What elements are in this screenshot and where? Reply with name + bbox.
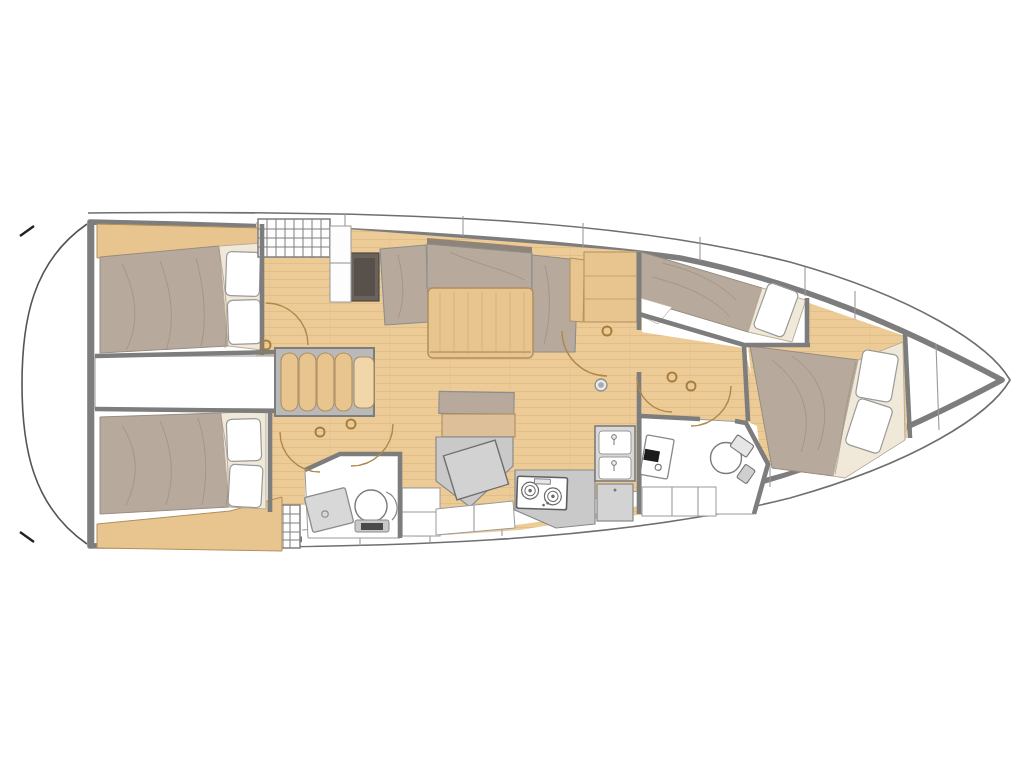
settee-back-cushion [427, 244, 532, 292]
step-tread [317, 353, 334, 411]
companionway-hatch-grid-top [258, 219, 330, 257]
transom-corner-mark-top [20, 226, 34, 236]
nav-seat [442, 414, 515, 437]
tall-locker [330, 226, 351, 302]
aft-cabin-starboard [97, 411, 282, 551]
pillow [228, 464, 263, 508]
step-landing [354, 357, 374, 408]
nav-station [436, 391, 515, 535]
forward-head-sink [640, 435, 675, 479]
settee-left-cushion [380, 245, 429, 325]
pillow [225, 251, 261, 296]
transom-corner-mark-bottom [20, 532, 34, 542]
stove-handle [534, 479, 550, 485]
pillow [226, 418, 261, 461]
aft-cabin-port [97, 224, 262, 353]
pillow [227, 299, 262, 344]
bed-duvet [100, 413, 229, 514]
faucet [612, 461, 617, 466]
floorplan-canvas [0, 0, 1024, 768]
engine-compartment [95, 356, 275, 409]
tv-cabinet-inner [354, 258, 375, 296]
settee-right-trim [570, 258, 585, 322]
step-tread [335, 353, 352, 411]
forward-head-wall-left [641, 416, 700, 419]
nav-seat-backrest [439, 391, 514, 414]
toilet-base-dark [361, 523, 383, 530]
aft-head-side-cabinets [402, 488, 440, 536]
bed-duvet [100, 246, 228, 353]
companionway-steps [275, 348, 374, 416]
head-cabinets [642, 487, 716, 516]
step-tread [299, 353, 316, 411]
floorplan-page [0, 0, 1024, 768]
stove [516, 476, 567, 510]
dining-table [428, 288, 533, 358]
forward-cabin [750, 342, 905, 478]
floor-drain [595, 379, 607, 391]
faucet [612, 435, 617, 440]
engine-wall-bottom [95, 409, 276, 411]
hullside-cabinet [584, 252, 637, 322]
transom-curve [22, 224, 87, 544]
galley-sink-unit [595, 426, 635, 521]
toilet-bowl [355, 490, 387, 522]
step-tread [281, 353, 298, 411]
pillow [855, 349, 899, 403]
